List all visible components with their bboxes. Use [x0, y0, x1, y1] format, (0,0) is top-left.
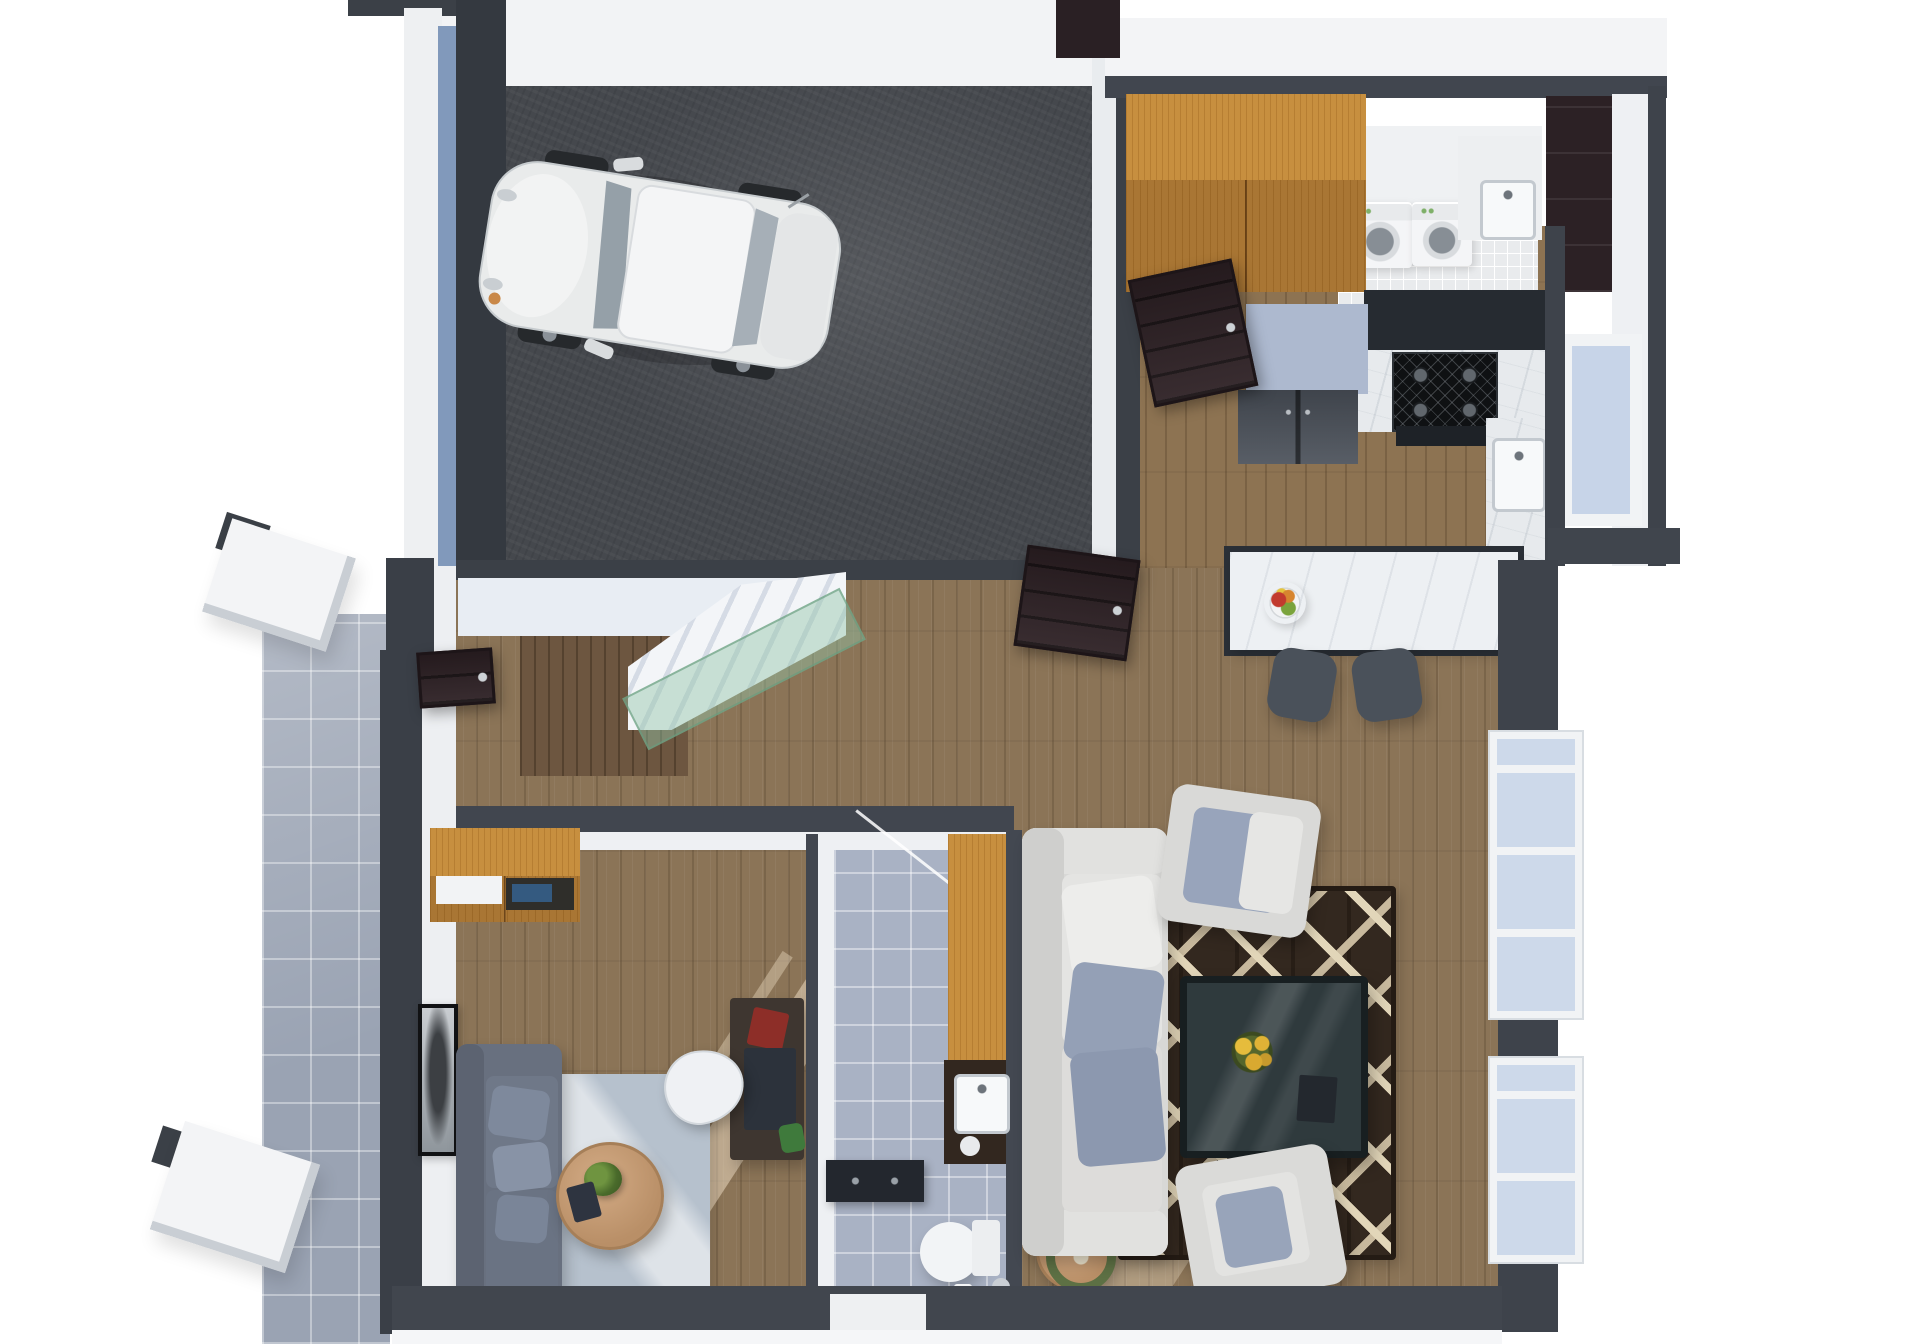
floor-plan-render	[0, 0, 1920, 1344]
desk-pad	[744, 1048, 796, 1130]
office-sofa-pillow-2	[491, 1141, 552, 1193]
door-garage-hall	[1013, 545, 1140, 662]
pantry-cabinet-top	[1126, 94, 1366, 182]
kitchen-sink	[1492, 438, 1546, 512]
office-sofa-pillow-1	[487, 1084, 551, 1142]
bath-round-item	[960, 1136, 980, 1156]
kitchen-window-glass	[1572, 346, 1630, 514]
bath-console-dark	[826, 1160, 924, 1202]
bar-stool-1	[1264, 645, 1339, 725]
oven-front	[1396, 426, 1488, 446]
desk-green-cup	[778, 1122, 806, 1154]
garage-north-wall	[438, 0, 1108, 86]
living-sofa-pillow-blue-2	[1069, 1046, 1167, 1167]
toilet-tank	[972, 1220, 1000, 1276]
ne-east-wall-dark	[1648, 86, 1666, 566]
coffee-table-sunflowers	[1226, 1026, 1284, 1084]
stove	[1392, 352, 1498, 432]
south-wall-outer-band	[392, 1330, 1502, 1344]
se-wall-ledge	[1548, 528, 1680, 564]
living-sofa-pillow-light	[1060, 874, 1164, 978]
office-console-binders	[512, 884, 552, 902]
office-sofa-back	[456, 1044, 484, 1318]
north-wall	[1105, 18, 1667, 80]
kitchen-upper-cabinets	[1364, 290, 1548, 354]
coffee-table-book	[1296, 1075, 1337, 1124]
kitchen-east-wall	[1545, 226, 1565, 566]
office-console-top	[430, 828, 580, 876]
fridge-top	[1246, 304, 1368, 394]
south-threshold	[830, 1294, 926, 1330]
bath-basin	[954, 1074, 1010, 1134]
office-east-wall-white	[818, 834, 834, 1292]
west-wall-outer	[380, 650, 424, 1334]
garage-west-wall-outer	[404, 8, 442, 568]
window-east-1	[1490, 732, 1582, 1018]
window-east-2	[1490, 1058, 1582, 1262]
front-door	[416, 647, 496, 708]
south-wall	[392, 1286, 1502, 1334]
entry-west-stub	[386, 558, 434, 654]
fruit-bowl	[1264, 582, 1306, 624]
desk-red-book	[746, 1007, 789, 1052]
armchair-south-pillow	[1214, 1185, 1294, 1270]
office-sofa-pillow-3	[494, 1194, 550, 1244]
laundry-sink	[1480, 180, 1536, 240]
wall-art	[418, 1004, 458, 1156]
bath-west-wall	[1006, 830, 1022, 1292]
office-east-wall-dark	[806, 834, 818, 1292]
garage-ne-doorframe	[1056, 0, 1120, 58]
toilet-bowl	[920, 1222, 980, 1282]
bath-vanity-wood	[948, 834, 1006, 1066]
garage-south-wall	[456, 560, 1112, 580]
bar-stool-2	[1349, 646, 1424, 725]
office-console-shelf	[436, 876, 502, 904]
living-sofa-back	[1022, 828, 1064, 1256]
fridge-front	[1238, 390, 1358, 464]
